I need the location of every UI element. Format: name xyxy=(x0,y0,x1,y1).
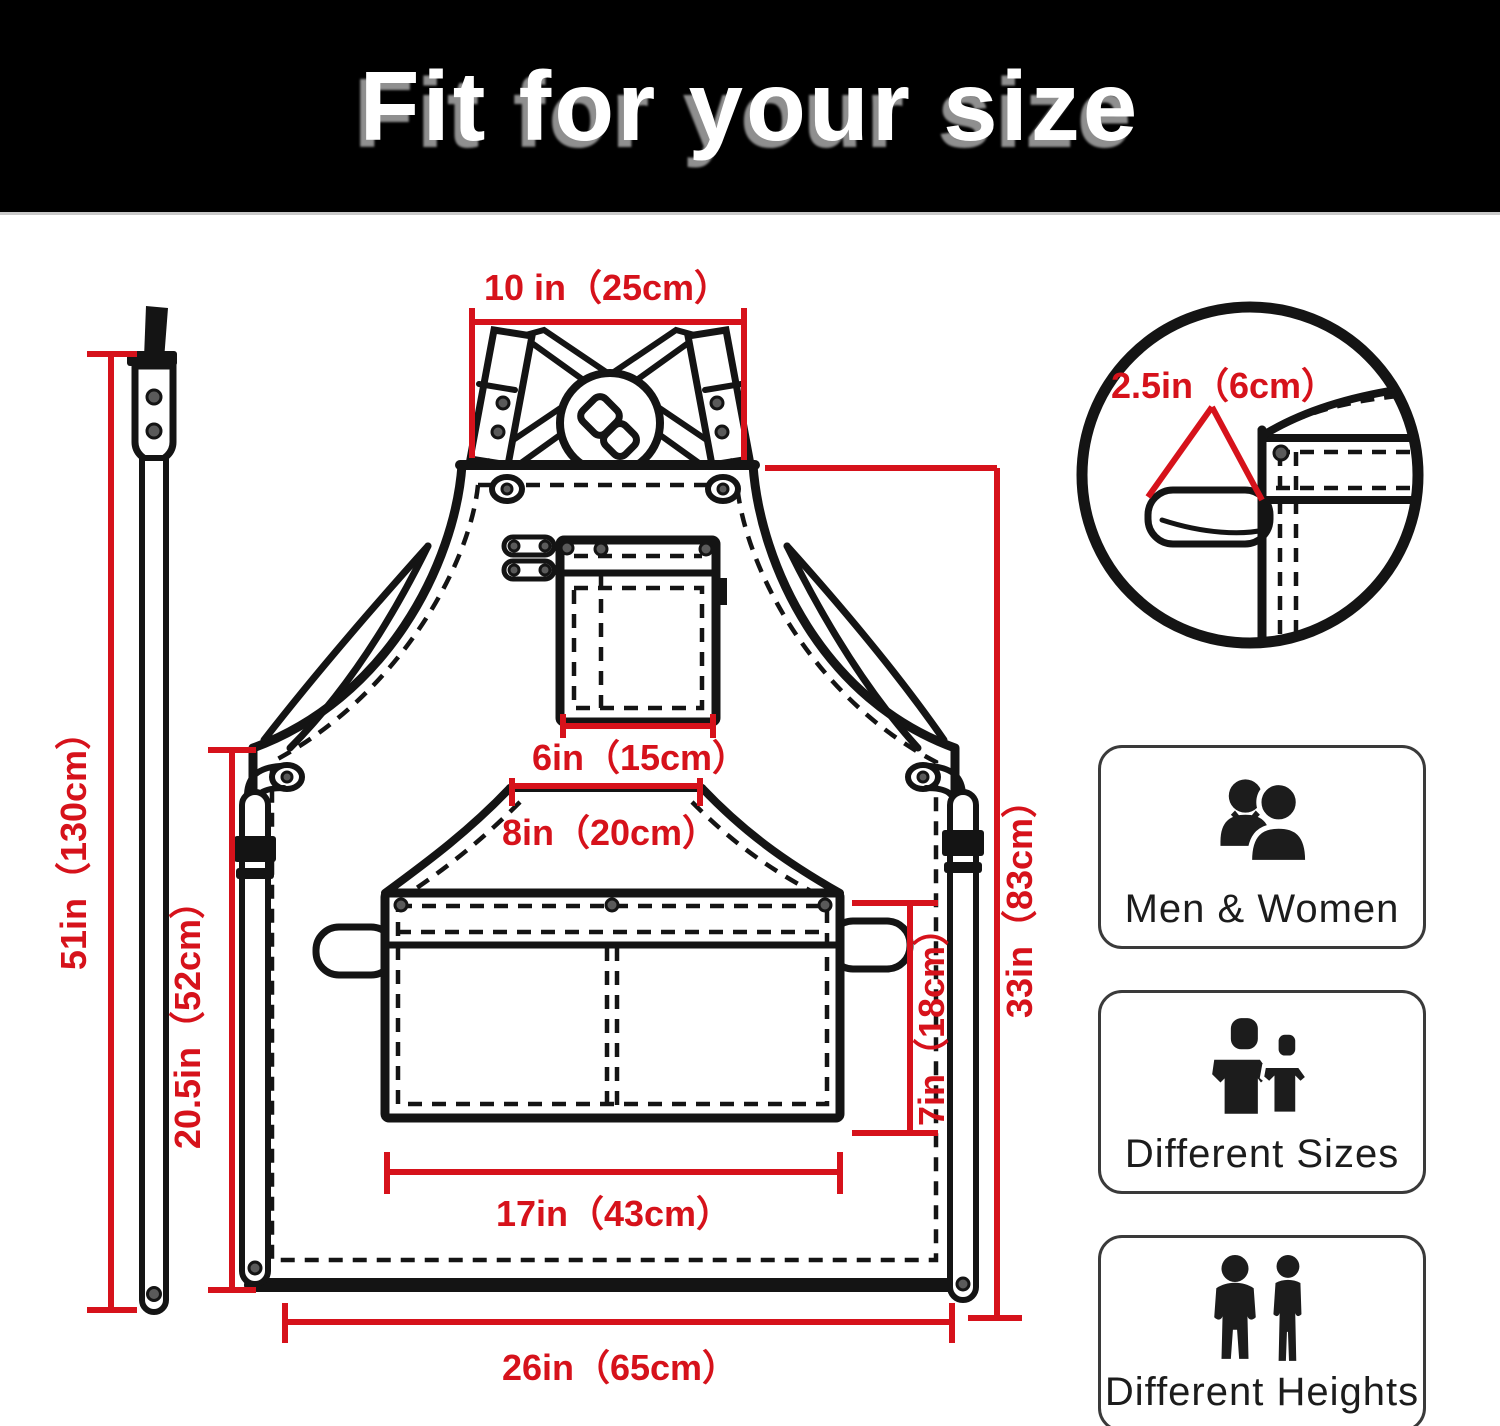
long-strap xyxy=(127,306,177,1312)
bottom-width-dimension-label: 26in（65cm） xyxy=(502,1347,738,1388)
different-sizes-icon xyxy=(1197,993,1327,1132)
strap-buckle-icon xyxy=(560,373,660,473)
strap-length-dimension-label: 51in（130cm） xyxy=(53,714,94,970)
apron-body xyxy=(251,330,957,1285)
header-band: Fit for your size xyxy=(0,0,1500,215)
loop-size-dimension-label: 2.5in（6cm） xyxy=(1111,365,1337,406)
cross-back-straps xyxy=(470,330,750,479)
mid-panel-dimension-label: 8in（20cm） xyxy=(502,812,718,853)
page-title: Fit for your size xyxy=(360,50,1141,163)
feature-label: Different Sizes xyxy=(1125,1132,1399,1177)
infographic-page: Fit for your size xyxy=(0,0,1500,1426)
body-length-dimension-label: 33in（83cm） xyxy=(999,782,1040,1018)
feature-label: Different Heights xyxy=(1105,1370,1419,1415)
feature-label: Men & Women xyxy=(1125,887,1400,932)
men-women-icon xyxy=(1197,748,1327,887)
feature-badge-men-women: Men & Women xyxy=(1098,745,1426,949)
feature-badge-different-heights: Different Heights xyxy=(1098,1235,1426,1426)
brand-tag xyxy=(714,578,727,605)
different-heights-icon xyxy=(1197,1238,1327,1370)
waist-pocket-width-dimension-label: 17in（43cm） xyxy=(496,1193,732,1234)
chest-pocket-dimension-label: 6in（15cm） xyxy=(532,737,748,778)
waist-pocket-height-dimension-label: 7in（18cm） xyxy=(911,910,952,1126)
neck-width-dimension-label: 10 in（25cm） xyxy=(484,267,730,308)
feature-badge-different-sizes: Different Sizes xyxy=(1098,990,1426,1194)
waist-pocket xyxy=(316,893,910,1118)
loop-detail-circle: 2.5in（6cm） xyxy=(1082,307,1425,645)
side-length-dimension-label: 20.5in（52cm） xyxy=(167,883,208,1149)
